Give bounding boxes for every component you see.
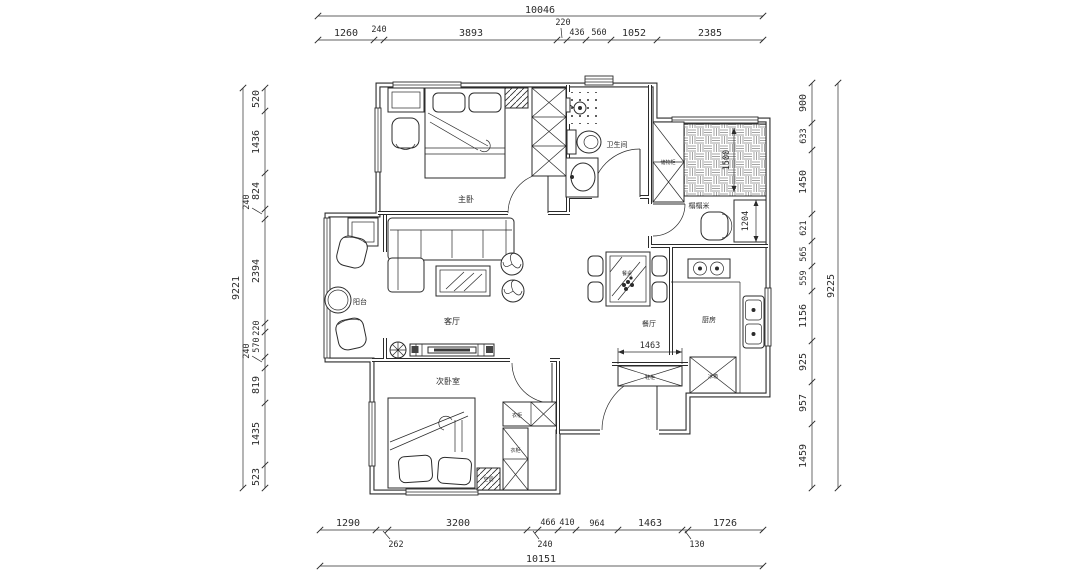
- dim-top-seg5: 560: [591, 28, 606, 38]
- dining-table-label: 餐桌: [622, 270, 632, 277]
- dim-left-seg10: 523: [251, 468, 262, 486]
- ac-unit-hatch: [505, 88, 528, 108]
- dim-entry-cabinet: 1463: [640, 341, 660, 351]
- room-label-living: 客厅: [444, 316, 460, 326]
- pillow: [437, 457, 472, 485]
- dim-bottom-total: 10151: [526, 554, 556, 565]
- dim-left-seg3: 240: [242, 194, 252, 209]
- master-bedroom-door: [508, 173, 548, 213]
- storage-label: 储物柜: [660, 159, 675, 166]
- floor-plan-drawing: 主卧 卫生间 储物柜 1500: [0, 0, 1074, 576]
- fridge-label: 冰箱: [708, 373, 718, 380]
- dim-left-total: 9221: [231, 276, 242, 300]
- dim-right-seg4: 565: [799, 246, 809, 261]
- second-bedroom: 空调 衣柜 衣柜 次卧室: [388, 376, 556, 490]
- dim-right-seg7: 925: [798, 353, 809, 371]
- speaker: [486, 346, 493, 353]
- nightstand: [388, 88, 424, 112]
- balcony-chair: [334, 316, 368, 351]
- entry-opening: [600, 428, 659, 436]
- dining-chair: [588, 256, 603, 276]
- dim-top-seg0: 1260: [334, 28, 358, 39]
- stove: [688, 259, 730, 278]
- window-bedroom2-west: [369, 402, 375, 466]
- dim-left-seg8: 819: [251, 376, 262, 394]
- dim-top-seg4: 436: [569, 28, 584, 38]
- window-master-north: [393, 82, 461, 88]
- dining-chair: [652, 256, 667, 276]
- room-label-kitchen: 厨房: [702, 315, 716, 324]
- window-balcony-west: [324, 218, 330, 358]
- fridge: 冰箱: [690, 357, 736, 393]
- second-bed: [388, 398, 475, 488]
- wardrobe-top: 衣柜: [503, 402, 556, 426]
- kitchen: 冰箱 厨房: [671, 259, 764, 393]
- dim-top-seg1: 240: [371, 25, 386, 35]
- dim-bottom-seg6: 964: [589, 519, 604, 529]
- wardrobe-label: 衣柜: [512, 412, 522, 419]
- dim-right-seg1: 633: [799, 128, 809, 143]
- room-label-balcony: 阳台: [353, 297, 367, 306]
- dim-chain-bottom: 1290 262 3200 240 466 410 964 1463 130 1…: [317, 518, 766, 569]
- tv-stand: [410, 344, 494, 356]
- dining-room: 餐桌 餐厅: [588, 252, 667, 328]
- dim-nook-depth: 1204: [741, 211, 751, 231]
- dim-left-seg7: 240: [242, 343, 252, 358]
- plant: [501, 253, 523, 275]
- window-bathroom-north: [585, 76, 613, 85]
- dim-bottom-seg3: 240: [537, 540, 552, 550]
- dim-bottom-seg0: 1290: [336, 518, 360, 529]
- plant: [502, 280, 524, 302]
- dim-top-seg3: 220: [555, 18, 570, 28]
- bathroom-door: [592, 149, 640, 197]
- balcony: 阳台: [325, 218, 378, 352]
- dim-tatami-width: 1500: [722, 150, 732, 170]
- dim-left-seg0: 520: [251, 90, 262, 108]
- dim-bottom-seg8: 130: [689, 540, 704, 550]
- window-tatami-north: [672, 117, 758, 123]
- shoe-cabinet: 鞋柜: [618, 366, 682, 386]
- wardrobe-label: 衣柜: [510, 447, 520, 454]
- master-bed: [425, 88, 505, 178]
- bedroom2-door: [512, 363, 552, 403]
- bedroom-chair: [392, 118, 419, 150]
- wardrobe-side: 衣柜: [503, 428, 528, 490]
- ac-hatch-box: 空调: [477, 468, 500, 490]
- dining-chair: [652, 282, 667, 302]
- coffee-table: [436, 266, 490, 296]
- floor-plan-canvas: 主卧 卫生间 储物柜 1500: [0, 0, 1074, 576]
- pillow: [469, 93, 501, 112]
- pillow: [398, 455, 433, 483]
- dining-chair: [588, 282, 603, 302]
- dim-bottom-seg4: 466: [540, 518, 555, 528]
- floor-lamp: [390, 342, 406, 358]
- dim-left-seg2: 824: [251, 182, 262, 200]
- dim-bottom-seg1: 262: [388, 540, 403, 550]
- dim-right-seg3: 621: [799, 220, 809, 235]
- dim-top-seg6: 1052: [622, 28, 646, 39]
- dim-left-seg6: 570: [252, 337, 262, 352]
- window-master-west: [375, 108, 381, 172]
- tv-screen: [434, 349, 470, 352]
- dim-left-seg5: 220: [252, 320, 262, 335]
- dim-left-seg1: 1436: [251, 130, 262, 154]
- bathroom-sink: [566, 158, 598, 197]
- shoe-cabinet-label: 鞋柜: [645, 374, 655, 381]
- dim-top-total: 10046: [525, 5, 555, 16]
- pillow: [433, 93, 465, 112]
- dim-chain-left: 9221 520 1436 824 240 2394 220 570 240 8…: [231, 85, 268, 491]
- dim-right-total: 9225: [826, 274, 837, 298]
- room-label-bedroom2: 次卧室: [436, 376, 460, 386]
- dim-chain-top: 10046 1260 240 3893 220 436 560 1052 238…: [315, 5, 766, 43]
- dim-bottom-seg7: 1463: [638, 518, 662, 529]
- dim-bottom-seg5: 410: [559, 518, 574, 528]
- toilet: [567, 130, 601, 154]
- master-wardrobe: [532, 88, 566, 176]
- room-label-tatami: 榻榻米: [689, 201, 710, 210]
- kitchen-sink: [743, 296, 764, 348]
- dim-top-seg2: 3893: [459, 28, 483, 39]
- tatami-room: 储物柜 1500 榻榻米 1204: [653, 122, 766, 242]
- room-label-master: 主卧: [458, 194, 474, 204]
- dim-right-seg9: 1459: [798, 444, 809, 468]
- dim-right-seg5: 559: [799, 270, 809, 285]
- balcony-table: [325, 287, 351, 313]
- dim-bottom-seg2: 3200: [446, 518, 470, 529]
- dim-bottom-seg9: 1726: [713, 518, 737, 529]
- storage-cabinet: 储物柜: [653, 122, 684, 202]
- window-kitchen-east: [765, 288, 771, 346]
- dim-top-seg7: 2385: [698, 28, 722, 39]
- ac-label: 空调: [483, 476, 493, 483]
- tatami-door: [653, 204, 685, 236]
- dim-right-seg0: 900: [798, 94, 809, 112]
- dining-table: 餐桌: [606, 252, 650, 306]
- dim-left-seg9: 1435: [251, 422, 262, 446]
- dim-chain-right: 900 633 1450 621 565 559 1156 925 957 14…: [798, 80, 841, 491]
- dim-right-seg2: 1450: [798, 170, 809, 194]
- dim-left-seg4: 2394: [251, 259, 262, 283]
- dim-right-seg6: 1156: [798, 304, 809, 328]
- dim-right-seg8: 957: [798, 394, 809, 412]
- speaker: [412, 346, 419, 353]
- window-bedroom2-south: [406, 489, 478, 495]
- master-bedroom: 主卧: [388, 88, 566, 204]
- bathroom: 卫生间: [566, 92, 628, 197]
- room-label-dining: 餐厅: [642, 319, 656, 328]
- room-label-bath: 卫生间: [607, 140, 628, 149]
- desk-chair: [701, 212, 732, 240]
- living-room: 客厅: [388, 218, 524, 358]
